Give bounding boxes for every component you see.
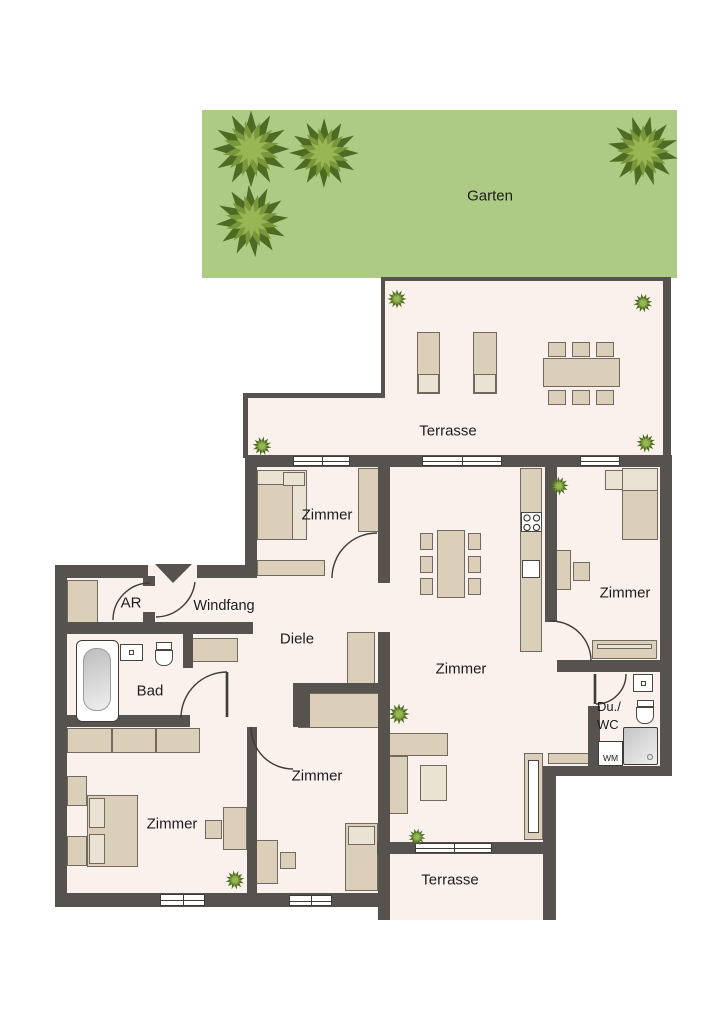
terrace-chair — [596, 342, 614, 357]
wall — [55, 565, 67, 907]
wardrobe — [112, 728, 156, 753]
window-divider — [311, 896, 312, 905]
chair — [573, 562, 590, 581]
wall — [381, 277, 385, 398]
sideboard-inner — [597, 644, 652, 649]
bed-pillow — [605, 470, 623, 490]
bed-pillow — [348, 826, 375, 845]
floor-plan: WM — [0, 0, 724, 1024]
chair — [468, 556, 481, 573]
room-label-garten: Garten — [467, 188, 513, 205]
sideboard — [548, 753, 592, 764]
window — [160, 894, 205, 906]
wardrobe — [358, 468, 380, 532]
bed-pillow — [89, 798, 105, 828]
bed-blanket — [257, 484, 293, 540]
wall — [245, 455, 257, 578]
nightstand — [67, 836, 87, 866]
shower-tray — [623, 727, 658, 765]
wall — [383, 277, 665, 281]
window — [289, 895, 332, 906]
coffee-table — [420, 765, 447, 801]
wall — [543, 766, 672, 776]
bed-pillow — [283, 472, 305, 486]
sun-lounger-foot — [418, 374, 439, 393]
chair — [205, 820, 222, 839]
room-label-zimmer-topleft: Zimmer — [302, 507, 353, 524]
window — [293, 456, 350, 466]
chair — [468, 578, 481, 595]
room-label-terrasse-bottom: Terrasse — [421, 872, 479, 889]
wardrobe — [67, 728, 112, 753]
window — [580, 456, 620, 466]
sofa — [387, 756, 408, 814]
room-label-zimmer-living: Zimmer — [436, 661, 487, 678]
terrace-top-floor — [246, 396, 386, 458]
room-label-du: Du./ — [597, 699, 621, 714]
room-label-ar: AR — [121, 595, 142, 612]
sideboard — [592, 640, 657, 659]
room-label-zimmer-bottomleft: Zimmer — [147, 816, 198, 833]
terrace-chair — [596, 390, 614, 405]
stove — [521, 512, 542, 532]
desk — [223, 807, 247, 850]
room-label-windfang: Windfang — [193, 598, 254, 614]
room-label-zimmer-right: Zimmer — [600, 585, 651, 602]
wc-sink — [633, 674, 653, 692]
bathroom-sink — [120, 644, 143, 661]
wall — [378, 632, 390, 920]
wc-toilet-bowl — [636, 707, 654, 724]
wardrobe — [298, 693, 380, 728]
wall — [55, 565, 148, 578]
terrace-chair — [548, 390, 566, 405]
wall — [378, 467, 390, 583]
chair — [468, 533, 481, 550]
chair — [420, 578, 433, 595]
wardrobe — [156, 728, 200, 753]
chair — [280, 852, 296, 869]
wall — [143, 612, 155, 624]
window — [422, 456, 502, 466]
nightstand — [67, 776, 87, 806]
window-divider — [183, 895, 184, 905]
room-label-diele: Diele — [280, 631, 314, 648]
bathtub-basin — [83, 648, 111, 711]
wall — [293, 683, 390, 693]
wall — [247, 727, 257, 893]
terrace-chair — [572, 390, 590, 405]
room-label-wc: WC — [597, 717, 619, 732]
chair — [420, 556, 433, 573]
wall — [245, 393, 385, 398]
toilet-bowl — [155, 650, 173, 666]
cabinet — [188, 638, 238, 662]
wall — [557, 660, 660, 672]
wardrobe — [347, 632, 375, 688]
bathtub — [76, 640, 119, 722]
dining-table — [437, 530, 465, 598]
wall — [243, 393, 248, 458]
washing-machine: WM — [598, 741, 623, 766]
washing-machine-label: WM — [603, 753, 618, 763]
terrace-chair — [572, 342, 590, 357]
room-label-zimmer-middle: Zimmer — [292, 768, 343, 785]
wall — [663, 277, 671, 458]
chair — [420, 533, 433, 550]
window-divider — [462, 457, 463, 465]
window-divider — [322, 457, 323, 465]
room-label-terrasse-top: Terrasse — [419, 423, 477, 440]
bed-blanket — [622, 490, 658, 540]
bed-pillow — [89, 834, 105, 864]
wc-toilet-tank — [637, 700, 654, 707]
closet — [67, 580, 98, 628]
terrace-chair — [548, 342, 566, 357]
sofa — [387, 733, 448, 756]
room-label-bad: Bad — [137, 683, 164, 700]
window — [415, 843, 492, 853]
window-divider — [454, 844, 455, 852]
shelf-inner — [528, 760, 539, 833]
sideboard — [257, 560, 325, 576]
sun-lounger-foot — [474, 374, 496, 393]
garden-area — [202, 110, 677, 278]
wall — [55, 893, 390, 907]
terrace-table — [543, 358, 620, 387]
wall — [143, 576, 155, 586]
wall — [545, 455, 557, 622]
kitchen-sink — [522, 560, 540, 578]
toilet-tank — [156, 642, 172, 650]
wall — [183, 622, 193, 668]
window-glazing — [581, 461, 619, 462]
wall — [660, 455, 672, 776]
